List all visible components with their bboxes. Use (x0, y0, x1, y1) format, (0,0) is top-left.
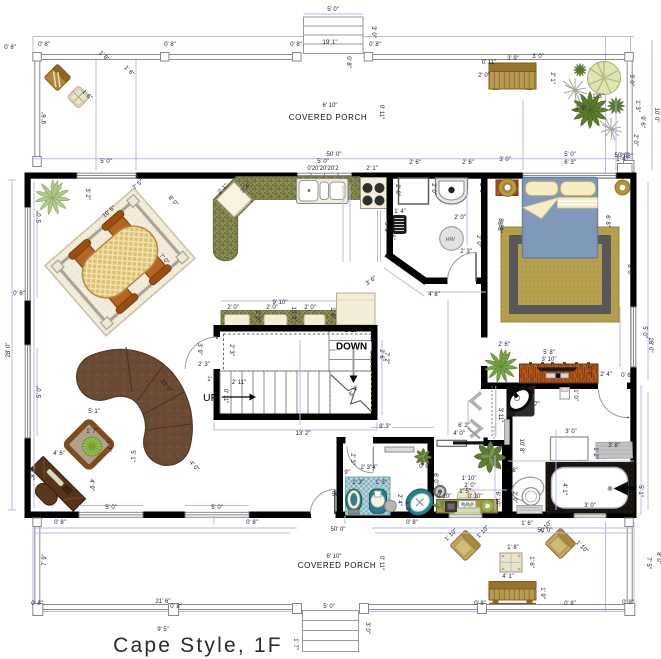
svg-text:0' 10": 0' 10" (468, 494, 483, 500)
svg-text:1' 3": 1' 3" (352, 480, 364, 486)
svg-text:7' 9": 7' 9" (42, 554, 48, 566)
svg-text:0' 8": 0' 8" (164, 42, 176, 48)
svg-text:5' 1": 5' 1" (129, 450, 135, 462)
svg-text:0' 10": 0' 10" (437, 494, 452, 500)
svg-text:2' 3"4": 2' 3"4" (360, 465, 377, 471)
svg-text:COVERED PORCH: COVERED PORCH (298, 561, 376, 570)
svg-text:3' 0": 3' 0" (364, 622, 370, 634)
svg-text:3' 0": 3' 0" (532, 54, 544, 60)
svg-text:6' 2": 6' 2" (458, 423, 470, 429)
svg-text:9' 6": 9' 6" (639, 116, 645, 128)
svg-text:4' 1": 4' 1" (561, 483, 567, 495)
svg-text:5' 0": 5' 0" (105, 505, 117, 511)
svg-text:0' 6": 0' 6" (13, 291, 25, 297)
svg-text:21' 6": 21' 6" (156, 599, 171, 605)
svg-text:6' 10": 6' 10" (494, 492, 500, 507)
svg-text:1' 6": 1' 6" (389, 228, 395, 240)
svg-text:0' 8": 0' 8" (38, 42, 50, 48)
svg-text:4' 0": 4' 0" (453, 431, 465, 437)
svg-text:6' 10": 6' 10" (327, 554, 342, 560)
svg-text:2' 0": 2' 0" (478, 183, 484, 195)
svg-text:3' 9": 3' 9" (196, 343, 202, 355)
svg-text:0' 8": 0' 8" (54, 520, 66, 526)
svg-text:5' 8": 5' 8" (543, 350, 555, 356)
svg-text:4' 9": 4' 9" (88, 479, 94, 491)
svg-text:5' 0": 5' 0" (327, 7, 339, 13)
svg-text:8' 3": 8' 3" (379, 424, 391, 430)
svg-text:0' 8": 0' 8" (345, 56, 351, 68)
svg-text:3' 9": 3' 9" (507, 56, 519, 62)
svg-text:0' 9": 0' 9" (338, 470, 350, 476)
svg-text:9' 6": 9' 6" (383, 222, 389, 234)
svg-text:1' 3": 1' 3" (592, 94, 604, 100)
svg-text:1' 0": 1' 0" (207, 377, 219, 383)
svg-text:2' 3": 2' 3" (198, 362, 210, 368)
svg-text:13' 3": 13' 3" (290, 307, 296, 322)
svg-text:0' 11": 0' 11" (482, 60, 497, 66)
svg-text:4' 1": 4' 1" (502, 574, 514, 580)
svg-text:3' 0": 3' 0" (628, 74, 634, 86)
svg-text:2' 7": 2' 7" (528, 402, 540, 408)
svg-text:4' 8": 4' 8" (428, 292, 440, 298)
svg-text:2' 0": 2' 0" (475, 235, 481, 247)
svg-text:1' 3": 1' 3" (634, 100, 640, 112)
svg-text:5' 0": 5' 0" (37, 211, 43, 223)
svg-text:10' 0": 10' 0" (653, 108, 659, 123)
svg-text:1' 4": 1' 4" (394, 209, 406, 215)
svg-text:8' 8": 8' 8" (496, 221, 502, 233)
svg-text:1' 0": 1' 0" (404, 501, 410, 513)
svg-text:5' 0": 5' 0" (211, 505, 223, 511)
svg-text:0' 8": 0' 8" (28, 468, 34, 480)
svg-text:0' 11": 0' 11" (378, 556, 384, 571)
svg-text:2' 1": 2' 1" (549, 72, 555, 84)
svg-text:5' 0": 5' 0" (37, 386, 43, 398)
svg-text:3' 2": 3' 2" (84, 188, 90, 200)
svg-text:2' 3": 2' 3" (349, 453, 355, 465)
svg-text:2' 4": 2' 4" (396, 494, 402, 506)
svg-text:6' 10": 6' 10" (323, 103, 338, 109)
svg-text:1' 2": 1' 2" (592, 447, 598, 459)
svg-text:0' 8": 0' 8" (622, 600, 634, 606)
svg-text:6' 0": 6' 0" (432, 473, 438, 485)
svg-text:5' 0": 5' 0" (641, 326, 647, 338)
svg-text:2' 6": 2' 6" (394, 184, 400, 196)
svg-text:1' 1": 1' 1" (586, 365, 592, 377)
svg-text:2' 1": 2' 1" (366, 166, 378, 172)
svg-text:1' 6": 1' 6" (521, 521, 533, 527)
svg-text:28' 0": 28' 0" (6, 343, 12, 358)
svg-text:5' 1": 5' 1" (637, 485, 643, 497)
svg-text:2' 0": 2' 0" (266, 305, 278, 311)
svg-text:5' 0": 5' 0" (100, 159, 112, 165)
svg-text:3' 0": 3' 0" (499, 157, 511, 163)
svg-text:3' 11": 3' 11" (497, 408, 503, 423)
svg-text:50' 0": 50' 0" (331, 527, 346, 533)
svg-text:2' 6": 2' 6" (498, 342, 510, 348)
svg-text:1' 0": 1' 0" (254, 310, 260, 322)
svg-text:0' 8": 0' 8" (170, 604, 182, 610)
svg-text:1' 10": 1' 10" (462, 476, 477, 482)
svg-text:0' 8": 0' 8" (406, 520, 418, 526)
svg-text:0' 8": 0' 8" (369, 42, 381, 48)
svg-text:0'20'20'20'2: 0'20'20'20'2 (307, 166, 339, 172)
svg-text:10' 8": 10' 8" (518, 439, 524, 454)
svg-text:HW: HW (446, 237, 456, 243)
svg-text:8' 0": 8' 0" (626, 264, 632, 276)
svg-text:3' 8": 3' 8" (608, 443, 620, 449)
svg-text:19' 1": 19' 1" (323, 40, 338, 46)
svg-text:1' 9": 1' 9" (539, 587, 545, 599)
svg-text:8' 0": 8' 0" (655, 552, 661, 564)
svg-text:UP: UP (203, 392, 218, 404)
svg-text:Cape Style, 1F: Cape Style, 1F (113, 634, 283, 657)
svg-text:1' 7": 1' 7" (292, 638, 298, 650)
svg-text:2' 11": 2' 11" (232, 380, 247, 386)
svg-text:1' 6": 1' 6" (528, 556, 534, 568)
svg-text:0' 6": 0' 6" (621, 373, 633, 379)
svg-text:1' 8": 1' 8" (506, 468, 518, 474)
svg-text:50' 0": 50' 0" (327, 152, 342, 158)
svg-text:2' 3": 2' 3" (228, 344, 234, 356)
svg-text:9' 5": 9' 5" (157, 627, 169, 633)
svg-text:2' 4": 2' 4" (600, 372, 612, 378)
svg-text:0' 8": 0' 8" (31, 601, 43, 607)
svg-text:2' 0": 2' 0" (511, 491, 517, 503)
svg-text:6' 8": 6' 8" (604, 215, 610, 227)
svg-text:2' 10": 2' 10" (345, 328, 360, 334)
svg-text:5' 1": 5' 1" (88, 409, 100, 415)
svg-text:3' 0": 3' 0" (584, 503, 596, 509)
svg-text:50': 50' (332, 492, 340, 498)
svg-text:0' 8": 0' 8" (246, 520, 258, 526)
svg-text:1' 3": 1' 3" (375, 480, 387, 486)
svg-text:0' 11": 0' 11" (378, 105, 384, 120)
svg-text:2' 3": 2' 3" (460, 249, 472, 255)
svg-text:2' 0": 2' 0" (304, 305, 316, 311)
svg-text:7' 2": 7' 2" (383, 352, 389, 364)
svg-text:2' 0": 2' 0" (227, 305, 239, 311)
svg-text:1' 0": 1' 0" (572, 389, 578, 401)
svg-text:3' 0": 3' 0" (370, 26, 376, 38)
svg-text:6' 3": 6' 3" (564, 160, 576, 166)
svg-text:1' 4": 1' 4" (616, 157, 628, 163)
svg-text:2' 0": 2' 0" (454, 215, 466, 221)
svg-text:7' 5": 7' 5" (645, 557, 651, 569)
svg-text:28' 0": 28' 0" (647, 338, 653, 353)
svg-text:13' 2": 13' 2" (296, 431, 311, 437)
svg-text:0' 9": 0' 9" (419, 464, 431, 470)
svg-text:0' 8": 0' 8" (564, 601, 576, 607)
svg-text:4' 6": 4' 6" (53, 451, 65, 457)
svg-text:1' 7": 1' 7" (86, 429, 98, 435)
svg-text:2' 0": 2' 0" (632, 134, 638, 146)
svg-text:0' 8": 0' 8" (290, 42, 302, 48)
svg-text:2' 0": 2' 0" (430, 183, 436, 195)
svg-text:5' 0": 5' 0" (564, 152, 576, 158)
svg-text:1' 7": 1' 7" (105, 440, 111, 452)
svg-text:COVERED PORCH: COVERED PORCH (289, 113, 367, 122)
svg-text:1' 6": 1' 6" (329, 307, 335, 319)
svg-text:3' 0": 3' 0" (565, 429, 577, 435)
svg-text:0' 8": 0' 8" (474, 601, 486, 607)
svg-text:3' 9": 3' 9" (575, 106, 587, 112)
svg-text:1' 8": 1' 8" (507, 545, 519, 551)
svg-text:50' 0": 50' 0" (538, 528, 553, 534)
svg-text:2' 6": 2' 6" (409, 160, 421, 166)
svg-text:2' 6": 2' 6" (462, 160, 474, 166)
svg-text:0' 8": 0' 8" (4, 45, 16, 51)
svg-text:2' 0": 2' 0" (478, 73, 490, 79)
svg-text:0' 11": 0' 11" (222, 389, 228, 404)
svg-text:9' 6": 9' 6" (42, 112, 48, 124)
svg-text:3' 10": 3' 10" (542, 357, 557, 363)
svg-text:5' 0": 5' 0" (317, 159, 329, 165)
svg-text:5' 0": 5' 0" (323, 604, 335, 610)
svg-text:DOWN: DOWN (336, 342, 367, 353)
